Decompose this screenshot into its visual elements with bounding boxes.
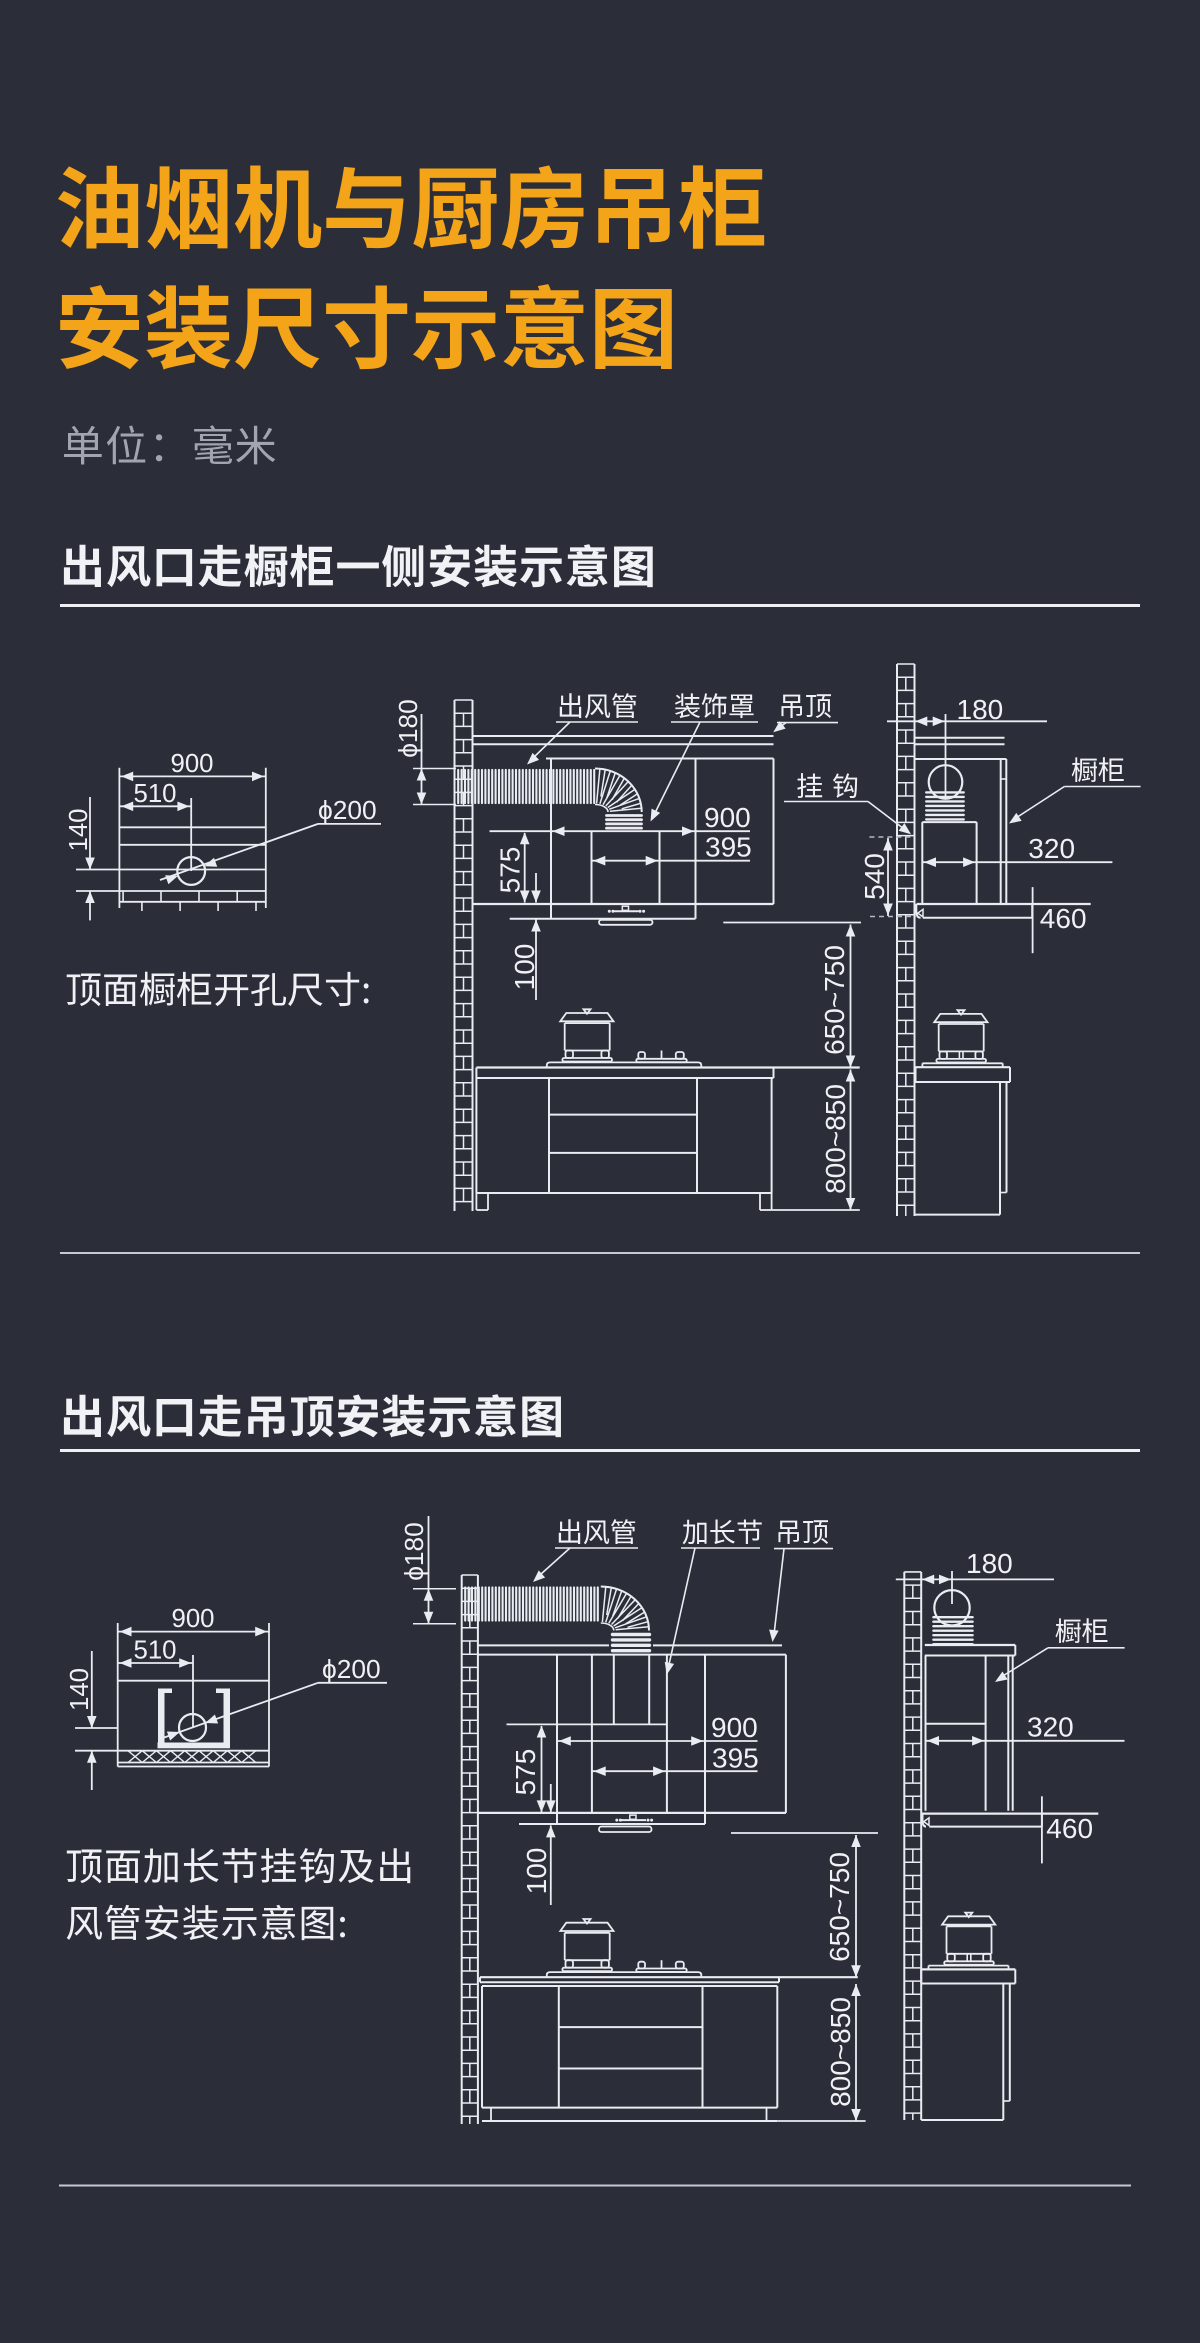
svg-text:装饰罩: 装饰罩 [674,685,755,724]
svg-text:挂钩: 挂钩 [796,765,868,804]
svg-text:900: 900 [171,1605,214,1633]
svg-text:加长节: 加长节 [682,1511,763,1550]
svg-text:900: 900 [711,1712,758,1743]
svg-text:460: 460 [1040,903,1087,934]
svg-text:650~750: 650~750 [819,945,850,1055]
svg-text:出风管: 出风管 [556,1511,637,1550]
svg-text:吊顶: 吊顶 [775,1511,829,1550]
svg-text:吊顶: 吊顶 [778,685,832,724]
svg-text:出风管: 出风管 [557,685,638,724]
svg-text:顶面加长节挂钩及出: 顶面加长节挂钩及出 [65,1836,415,1891]
svg-text:395: 395 [712,1743,759,1774]
svg-text:320: 320 [1028,833,1075,864]
svg-text:800~850: 800~850 [825,1997,856,2107]
svg-text:900: 900 [170,750,213,778]
svg-text:900: 900 [704,802,751,833]
svg-text:180: 180 [957,694,1004,725]
svg-text:100: 100 [509,944,540,991]
svg-text:ϕ200: ϕ200 [322,1654,381,1684]
svg-text:ϕ180: ϕ180 [393,699,423,758]
svg-text:140: 140 [65,808,93,851]
svg-text:510: 510 [133,780,176,808]
svg-text:180: 180 [966,1548,1013,1579]
svg-text:540: 540 [859,853,890,900]
svg-text:100: 100 [521,1848,552,1895]
svg-text:风管安装示意图:: 风管安装示意图: [65,1893,349,1948]
svg-text:575: 575 [495,847,526,894]
svg-text:橱柜: 橱柜 [1055,1610,1109,1649]
svg-text:800~850: 800~850 [820,1084,851,1194]
svg-text:320: 320 [1027,1712,1074,1743]
svg-text:橱柜: 橱柜 [1071,749,1125,788]
svg-text:510: 510 [133,1637,176,1665]
svg-text:ϕ200: ϕ200 [318,795,377,825]
svg-text:460: 460 [1046,1813,1093,1844]
svg-text:575: 575 [510,1749,541,1796]
svg-text:395: 395 [705,832,752,863]
svg-text:顶面橱柜开孔尺寸:: 顶面橱柜开孔尺寸: [65,960,371,1014]
svg-text:140: 140 [66,1668,94,1711]
svg-text:650~750: 650~750 [824,1852,855,1962]
svg-text:ϕ180: ϕ180 [399,1522,429,1581]
